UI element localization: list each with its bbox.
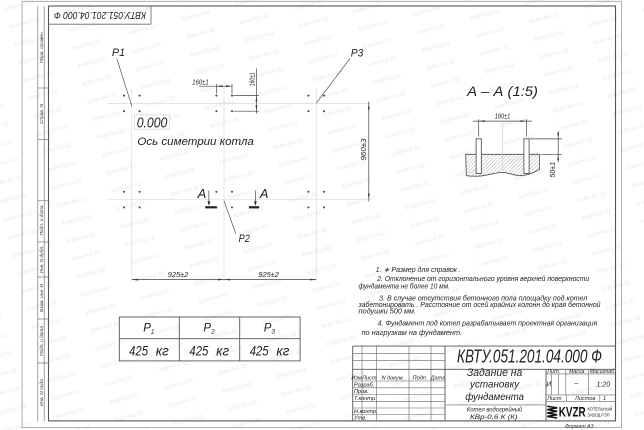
- svg-text:Инв. N дубл.: Инв. N дубл.: [39, 246, 45, 274]
- svg-text:Формат А3: Формат А3: [565, 424, 594, 430]
- svg-text:425: 425: [250, 344, 269, 359]
- svg-text:160±1: 160±1: [250, 72, 257, 86]
- svg-text:КВТУ.051.201.04.000 Ф: КВТУ.051.201.04.000 Ф: [54, 9, 146, 21]
- svg-text:2. Отклонение от горизонтально: 2. Отклонение от горизонтального уровня …: [376, 275, 589, 283]
- svg-text:фундамента не более 10 мм.: фундамента не более 10 мм.: [359, 282, 451, 290]
- svg-text:КВТУ.051.201.04.000 Ф: КВТУ.051.201.04.000 Ф: [457, 345, 602, 366]
- svg-text:подушки 500 мм.: подушки 500 мм.: [359, 308, 417, 316]
- svg-text:кг: кг: [156, 344, 169, 359]
- svg-text:P3: P3: [351, 48, 364, 60]
- svg-text:Справ. N: Справ. N: [39, 103, 45, 124]
- svg-text:425: 425: [129, 344, 148, 359]
- svg-text:А: А: [197, 186, 207, 201]
- svg-text:960±3: 960±3: [361, 138, 368, 160]
- svg-text:ЗАВОД РЭП: ЗАВОД РЭП: [588, 412, 610, 417]
- svg-text:Масштаб: Масштаб: [590, 369, 615, 375]
- svg-text:Подп.: Подп.: [413, 375, 428, 381]
- svg-text:КОТЕЛЬНЫЙ: КОТЕЛЬНЫЙ: [588, 405, 613, 412]
- svg-text:Взам. инв. N: Взам. инв. N: [39, 284, 45, 312]
- svg-text:Котел водогрейный: Котел водогрейный: [467, 406, 523, 414]
- svg-text:KVZR: KVZR: [559, 403, 586, 419]
- svg-text:P2: P2: [239, 233, 250, 245]
- svg-text:Листов: Листов: [574, 396, 595, 402]
- svg-text:1:20: 1:20: [596, 381, 610, 388]
- svg-text:425: 425: [189, 344, 208, 359]
- svg-text:160±1: 160±1: [495, 114, 511, 121]
- svg-text:Инв. N подл.: Инв. N подл.: [39, 378, 45, 406]
- svg-text:Подп. и дата: Подп. и дата: [39, 205, 45, 235]
- svg-text:–: –: [573, 380, 578, 387]
- svg-text:1: 1: [603, 396, 606, 402]
- svg-text:0.000: 0.000: [137, 116, 168, 132]
- svg-text:Перв. примен.: Перв. примен.: [39, 31, 45, 63]
- svg-text:Ось симетрии котла: Ось симетрии котла: [137, 136, 253, 148]
- svg-text:КВр-0,6 К (К): КВр-0,6 К (К): [470, 414, 518, 421]
- svg-text:925±2: 925±2: [168, 270, 189, 279]
- svg-text:установку: установку: [469, 378, 520, 390]
- svg-text:N докум.: N докум.: [381, 375, 404, 381]
- svg-text:925±2: 925±2: [258, 270, 279, 279]
- svg-text:Утв.: Утв.: [353, 416, 367, 422]
- svg-text:кг: кг: [276, 344, 289, 359]
- svg-text:50±1: 50±1: [550, 162, 557, 178]
- svg-text:P1: P1: [112, 47, 125, 59]
- svg-text:Дата: Дата: [430, 375, 446, 381]
- svg-text:А – А (1:5): А – А (1:5): [466, 84, 538, 99]
- svg-text:Масса: Масса: [569, 369, 584, 375]
- svg-text:Задание на: Задание на: [467, 367, 522, 379]
- svg-text:Лист: Лист: [361, 375, 377, 381]
- svg-text:Лит.: Лит.: [546, 369, 560, 375]
- svg-text:кг: кг: [216, 344, 229, 359]
- svg-text:Т.контр.: Т.контр.: [354, 396, 377, 402]
- svg-text:А: А: [259, 186, 269, 201]
- svg-text:160±1: 160±1: [192, 79, 208, 86]
- svg-text:Лист: Лист: [546, 396, 562, 402]
- svg-text:по нагрузкам на фундамент.: по нагрузкам на фундамент.: [362, 329, 463, 337]
- svg-text:Н.контр.: Н.контр.: [354, 409, 378, 415]
- svg-text:4. Фундамент под котел разраба: 4. Фундамент под котел разрабатывает про…: [378, 319, 598, 327]
- svg-text:1. ∗ Размер для справок .: 1. ∗ Размер для справок .: [376, 266, 461, 274]
- svg-text:Разраб.: Разраб.: [354, 382, 374, 388]
- svg-text:фундамента: фундамента: [465, 391, 524, 403]
- svg-text:Подп. и дата: Подп. и дата: [39, 326, 45, 356]
- svg-text:Пров.: Пров.: [354, 389, 369, 395]
